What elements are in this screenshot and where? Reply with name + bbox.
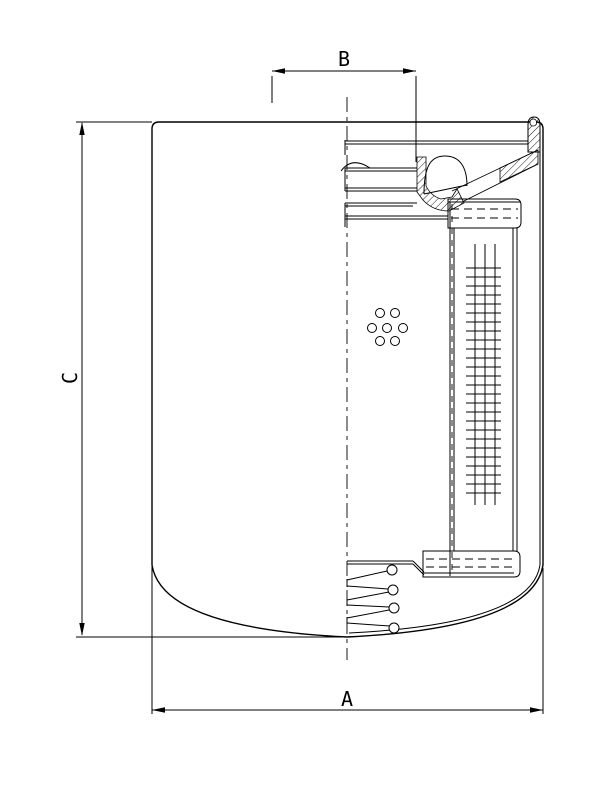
baffle-plate	[417, 117, 540, 211]
coil-line	[347, 571, 387, 580]
coil-line	[347, 623, 390, 626]
hole	[391, 309, 400, 318]
spring-wire-section	[389, 603, 399, 613]
arrowhead-left	[272, 68, 285, 73]
dimension-b: B	[272, 47, 416, 162]
dimension-c: C	[58, 122, 347, 637]
dimension-label-b: B	[338, 47, 350, 71]
media-grid	[466, 244, 501, 505]
dimension-a: A	[152, 565, 543, 714]
spring-dome	[424, 156, 467, 194]
filter-cross-section-diagram: B C A	[0, 0, 612, 792]
coil-line	[347, 586, 388, 589]
hole	[399, 324, 408, 333]
spring-wire-section	[387, 565, 397, 575]
baffle-hatched-segment	[500, 150, 538, 182]
spring-wire-section	[389, 623, 399, 633]
spring-seat-plate	[413, 564, 424, 575]
drawing-page: B C A	[0, 0, 612, 792]
spring-dome-base	[424, 185, 467, 194]
hole	[376, 309, 385, 318]
filter-element	[423, 199, 521, 577]
hole	[368, 324, 377, 333]
arrowhead-right	[403, 68, 416, 73]
coil-line	[347, 592, 389, 600]
dimension-label-a: A	[341, 687, 353, 711]
hole	[376, 337, 385, 346]
bypass-holes	[368, 309, 408, 346]
arrowhead-bottom	[79, 623, 84, 636]
coil-line	[347, 610, 389, 618]
spring-seat-plate	[413, 561, 424, 572]
thread-port	[341, 140, 528, 227]
dimension-label-c: C	[58, 372, 82, 384]
arrowhead-right	[530, 707, 543, 712]
hole	[383, 324, 392, 333]
spring-wire-section	[388, 585, 398, 595]
can-bottom-right-outer-curve	[347, 565, 543, 637]
can-bottom-left-curve	[152, 565, 347, 637]
coil-spring	[347, 561, 424, 633]
can-bottom-right-inner-curve	[349, 565, 540, 633]
arrowhead-top	[79, 122, 84, 135]
seam-lip	[530, 119, 537, 126]
arrowhead-left	[152, 707, 165, 712]
hole	[391, 337, 400, 346]
coil-line	[347, 605, 389, 607]
